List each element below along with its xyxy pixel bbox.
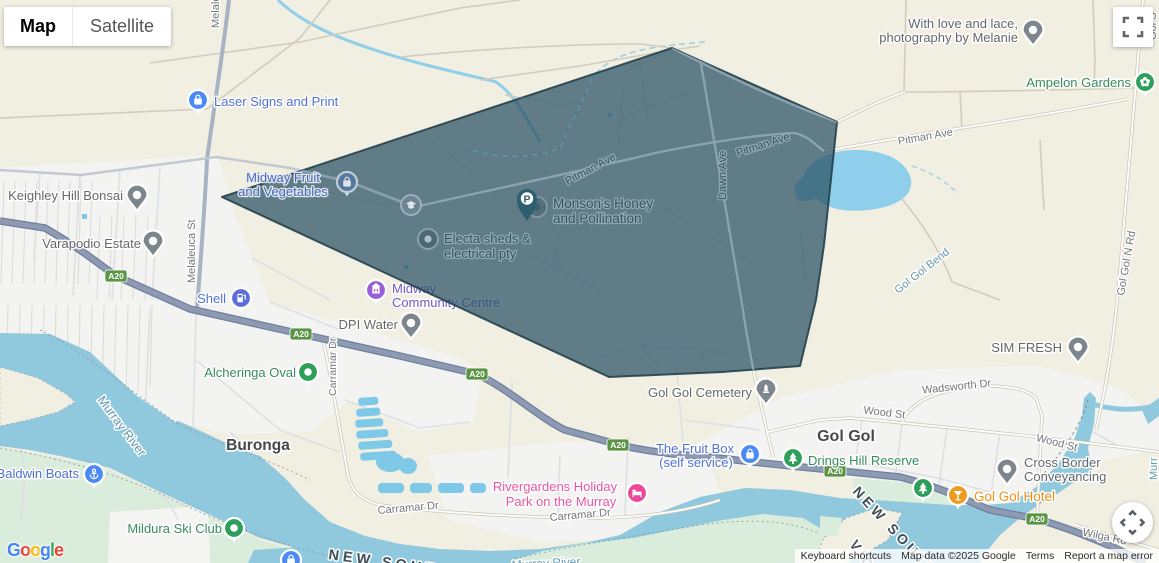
svg-text:Carramar Dr: Carramar Dr bbox=[327, 337, 339, 396]
svg-text:Drings Hill Reserve: Drings Hill Reserve bbox=[808, 453, 919, 468]
svg-text:Monson's Honey: Monson's Honey bbox=[553, 196, 653, 211]
svg-text:Dawn Ave: Dawn Ave bbox=[717, 151, 729, 200]
svg-text:Murr: Murr bbox=[1148, 457, 1159, 480]
svg-text:Ampelon Gardens: Ampelon Gardens bbox=[1026, 75, 1131, 90]
svg-text:Conveyancing: Conveyancing bbox=[1024, 469, 1106, 484]
svg-text:Shell: Shell bbox=[197, 291, 226, 306]
svg-text:Melaleuca St: Melaleuca St bbox=[186, 219, 198, 283]
svg-text:(self service): (self service) bbox=[659, 455, 733, 470]
svg-text:Alcheringa Oval: Alcheringa Oval bbox=[204, 365, 296, 380]
svg-text:Melale: Melale bbox=[210, 0, 222, 28]
svg-text:Laser Signs and Print: Laser Signs and Print bbox=[214, 94, 339, 109]
svg-text:and Vegetables: and Vegetables bbox=[238, 184, 328, 199]
svg-text:and Pollination: and Pollination bbox=[553, 211, 642, 226]
svg-text:P: P bbox=[523, 194, 530, 206]
svg-text:Keighley Hill Bonsai: Keighley Hill Bonsai bbox=[8, 188, 123, 203]
svg-text:DPI Water: DPI Water bbox=[339, 317, 399, 332]
svg-text:SIM FRESH: SIM FRESH bbox=[991, 340, 1062, 355]
svg-text:Mildura Ski Club: Mildura Ski Club bbox=[127, 521, 222, 536]
svg-text:Electa sheds &: Electa sheds & bbox=[444, 231, 531, 246]
svg-text:With love and lace,: With love and lace, bbox=[908, 16, 1018, 31]
svg-text:A20: A20 bbox=[1029, 514, 1045, 524]
svg-text:The Fruit Box: The Fruit Box bbox=[656, 441, 735, 456]
svg-text:electrical pty: electrical pty bbox=[444, 246, 517, 261]
svg-text:photography by Melanie: photography by Melanie bbox=[879, 30, 1018, 45]
svg-text:Gol Gol Cemetery: Gol Gol Cemetery bbox=[648, 385, 753, 400]
svg-text:Gol Gol: Gol Gol bbox=[817, 428, 875, 445]
svg-text:Buronga: Buronga bbox=[226, 437, 290, 454]
svg-text:A20: A20 bbox=[108, 271, 124, 281]
svg-text:Cross Border: Cross Border bbox=[1024, 455, 1101, 470]
svg-text:A20: A20 bbox=[610, 440, 626, 450]
svg-text:A20: A20 bbox=[293, 329, 309, 339]
svg-text:Gol Gol Hotel: Gol Gol Hotel bbox=[974, 489, 1055, 504]
svg-text:Varapodio Estate: Varapodio Estate bbox=[42, 236, 141, 251]
svg-text:Baldwin Boats: Baldwin Boats bbox=[0, 466, 79, 481]
svg-text:Midway Fruit: Midway Fruit bbox=[246, 170, 320, 185]
svg-text:Rivergardens Holiday: Rivergardens Holiday bbox=[493, 479, 618, 494]
svg-text:A20: A20 bbox=[469, 369, 485, 379]
